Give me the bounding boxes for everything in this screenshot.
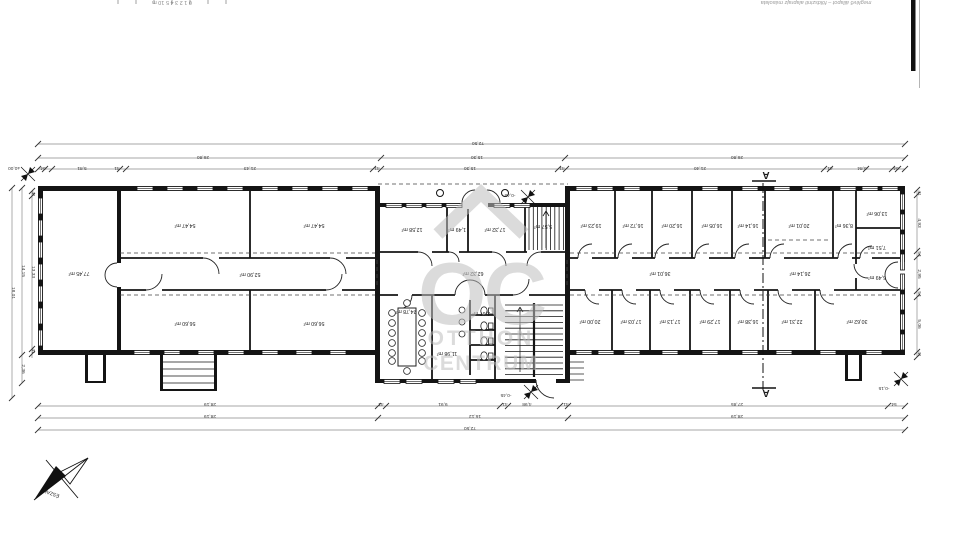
watermark-house-roof-icon: [438, 193, 524, 234]
dimension-label: 28,19: [731, 413, 743, 419]
door-arc: [770, 244, 784, 258]
door-arc: [838, 244, 852, 258]
floor-plan: 72,5026,8015,3026,80545,814121,434115,30…: [0, 0, 964, 559]
door-arc: [326, 274, 342, 290]
room-area-label: 16,05 m²: [701, 222, 722, 228]
section-marker-a-bottom: A: [762, 387, 769, 398]
door-arc: [105, 275, 117, 287]
elevation-marker-icon: [521, 190, 535, 204]
room-area-label: 52,90 m²: [239, 271, 260, 277]
elevation-label: -0,15: [878, 385, 889, 391]
elevation-marker-icon: [894, 372, 908, 386]
dimension-label: 26,80: [731, 154, 743, 160]
watermark-otthon: OTTHON: [428, 327, 535, 350]
room-area-label: 22,31 m²: [781, 318, 802, 324]
door-arc: [885, 262, 898, 275]
room-area-label: 36,01 m²: [649, 270, 670, 276]
dimension-label: 41: [30, 191, 36, 197]
door-arc: [655, 244, 669, 258]
dimension-label: 41: [378, 401, 384, 407]
room-area-label: 8,36 m²: [835, 222, 853, 228]
dimension-label: 54: [40, 165, 46, 171]
north-label: ÉSZAK: [42, 487, 60, 499]
room-area-label: 5,57 m²: [534, 223, 552, 229]
dimension-label: 27,85: [731, 401, 743, 407]
dimension-label: 41: [30, 348, 36, 354]
elevation-label: -0,45: [500, 392, 511, 398]
dimension-label: 5,84: [857, 165, 867, 171]
dimension-label: 5,06: [916, 319, 922, 329]
dimension-label: 54: [893, 165, 899, 171]
dimension-label: 41: [916, 351, 922, 357]
room-area-label: 30,62 m²: [846, 318, 867, 324]
dimension-label: 16,12: [469, 413, 481, 419]
room-area-label: 56,60 m²: [303, 320, 324, 326]
dimension-label: 26,80: [197, 154, 209, 160]
dimension-label: 28,19: [204, 401, 216, 407]
dimension-label: 2,36: [20, 364, 26, 374]
dimension-label: 5,81: [77, 165, 87, 171]
room-area-label: 54,47 m²: [303, 222, 324, 228]
room-area-label: 17,03 m²: [620, 318, 641, 324]
dimension-label: 4,98: [522, 401, 532, 407]
room-area-label: 12,58 m²: [401, 226, 422, 232]
door-arc: [695, 244, 709, 258]
dimension-label: 72,50: [464, 425, 476, 431]
scale-ruler: 0 1 2 3 4 5 10 m: [152, 0, 192, 5]
dimension-label: 41: [114, 165, 120, 171]
door-arc: [578, 244, 592, 258]
room-area-label: 17,32 m²: [484, 226, 505, 232]
door-arc: [105, 263, 117, 275]
watermark: OC OTTHON CENTRUM: [418, 193, 545, 375]
room-area-label: 17,29 m²: [699, 318, 720, 324]
room-area-label: 16,14 m²: [737, 222, 758, 228]
drawing-sheet: 72,5026,8015,3026,80545,814121,434115,30…: [0, 0, 964, 559]
room-area-label: 16,72 m²: [622, 222, 643, 228]
elevation-label: ±0,00: [8, 165, 20, 171]
door-arc: [146, 274, 162, 290]
drawing-caption: meglévő állapot – földszinti alaprajz má…: [761, 0, 872, 5]
watermark-centrum: CENTRUM: [423, 352, 539, 375]
room-area-label: 54,47 m²: [174, 222, 195, 228]
section-marker-a-top: A: [762, 169, 769, 180]
dimension-label: 21,43: [244, 165, 256, 171]
room-area-label: 13,06 m²: [866, 210, 887, 216]
room-area-label: 16,20 m²: [661, 222, 682, 228]
dimension-label: 41: [502, 401, 508, 407]
room-area-label: 20,00 m²: [579, 318, 600, 324]
room-area-label: 7,51 m²: [868, 244, 886, 250]
room-area-label: 26,14 m²: [789, 270, 810, 276]
room-area-label: 77,45 m²: [68, 270, 89, 276]
elevation-label: -0,45: [504, 192, 515, 198]
dimension-label: 41: [559, 165, 565, 171]
dimension-label: 41: [916, 190, 922, 196]
room-area-label: 19,23 m²: [580, 222, 601, 228]
room-area-label: 20,01 m²: [788, 222, 809, 228]
dimension-label: 54: [891, 401, 897, 407]
room-area-label: 24,78 m²: [395, 308, 416, 314]
elevation-marker-icon: [21, 167, 35, 181]
room-area-label: 56,60 m²: [174, 320, 195, 326]
page-edge-bar: [911, 0, 916, 71]
dimension-label: 41: [374, 165, 380, 171]
dimension-label: 41: [563, 401, 569, 407]
room-area-label: 17,13 m²: [659, 318, 680, 324]
dimension-label: 15,30: [464, 165, 476, 171]
door-arc: [735, 244, 749, 258]
dimension-label: 2,95: [916, 269, 922, 279]
dimension-label: 41: [827, 165, 833, 171]
dimension-label: 28,19: [204, 413, 216, 419]
dimension-label: 72,50: [472, 140, 484, 146]
dimension-label: 9,91: [438, 401, 448, 407]
door-arc: [618, 244, 632, 258]
dimension-label: 54: [916, 291, 922, 297]
elevation-marker-icon: [524, 385, 538, 399]
room-area-label: 6,49 m²: [868, 274, 886, 280]
dimension-label: 13,33: [30, 266, 36, 278]
dimension-label: 4,93: [916, 218, 922, 228]
dimension-label: 54: [916, 251, 922, 257]
dimension-label: 18,01: [10, 287, 16, 299]
dimension-label: 14,15: [20, 265, 26, 277]
dimension-label: 15,30: [471, 154, 483, 160]
room-area-label: 16,38 m²: [737, 318, 758, 324]
dimension-label: 21,40: [694, 165, 706, 171]
